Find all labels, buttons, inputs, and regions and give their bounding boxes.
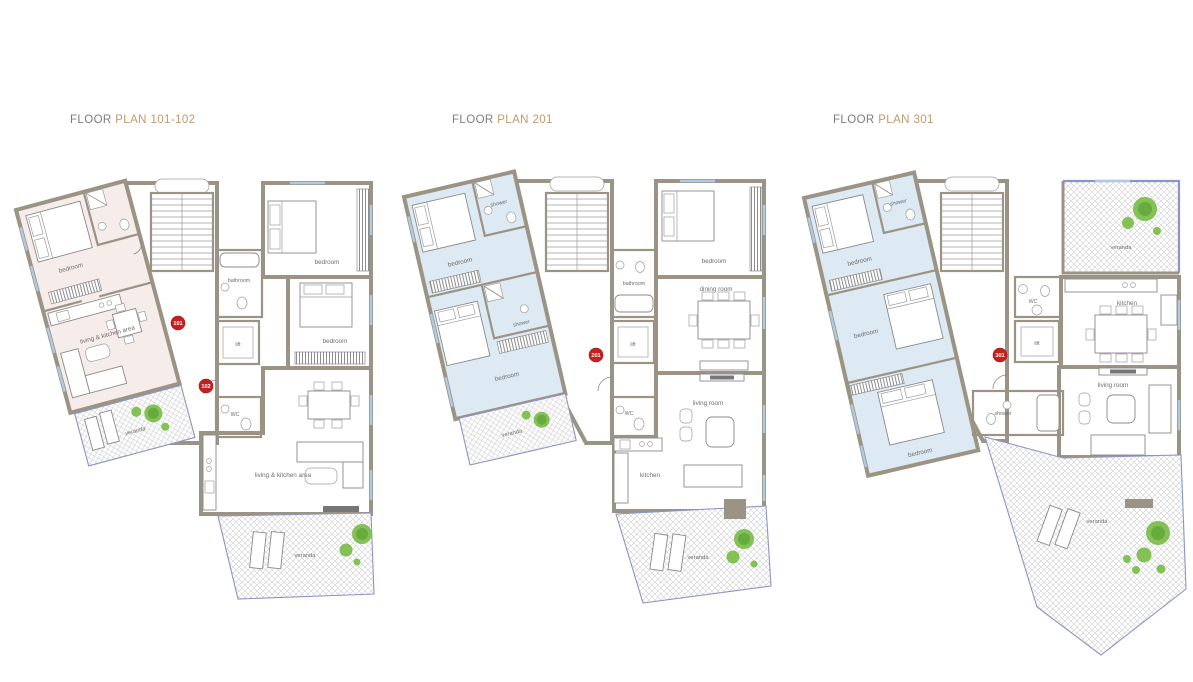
armchair bbox=[1107, 395, 1135, 423]
dining-room: dining room bbox=[656, 277, 764, 373]
service-core: bathroom lift WC bbox=[216, 250, 262, 437]
room-label-lift: lift bbox=[235, 342, 241, 348]
lift: lift bbox=[1015, 321, 1059, 362]
sofa bbox=[1149, 385, 1171, 433]
tree bbox=[354, 559, 361, 566]
side-table bbox=[1079, 393, 1090, 406]
service-core: WC lift bbox=[1015, 277, 1061, 362]
toilet bbox=[634, 418, 644, 430]
tree bbox=[1132, 566, 1140, 574]
tree bbox=[727, 551, 740, 564]
tree bbox=[1138, 202, 1152, 216]
tree bbox=[356, 528, 368, 540]
bedroom-102-ne: bedroom bbox=[263, 183, 371, 277]
room-label-lift: lift bbox=[1034, 341, 1040, 347]
kitchen-counter bbox=[614, 438, 662, 503]
tree bbox=[1153, 227, 1161, 235]
sink bbox=[1019, 285, 1028, 294]
veranda-se: veranda bbox=[985, 437, 1186, 655]
side-table bbox=[1079, 411, 1090, 424]
wardrobe bbox=[295, 352, 365, 364]
wc: WC bbox=[1015, 277, 1061, 317]
veranda-201: veranda bbox=[616, 499, 771, 603]
bathtub bbox=[220, 253, 259, 267]
bench bbox=[1125, 499, 1153, 508]
bedroom-201-ne: bedroom bbox=[656, 181, 764, 277]
room-label-wc: WC bbox=[1029, 299, 1038, 305]
room-label-bedroom-102-ne: bedroom bbox=[315, 259, 340, 266]
kitchen-counter bbox=[203, 435, 216, 510]
tree bbox=[751, 561, 758, 568]
wc: WC bbox=[611, 397, 655, 436]
badge-102-label: 102 bbox=[201, 384, 210, 390]
floor-plan-201: shower shower bbox=[404, 172, 771, 603]
wardrobe bbox=[750, 187, 762, 271]
sink bbox=[616, 406, 624, 414]
bathtub bbox=[1037, 395, 1059, 431]
lift: lift bbox=[612, 321, 654, 363]
tree bbox=[1151, 526, 1165, 540]
unit-badge-201: 201 bbox=[589, 348, 603, 362]
sofa bbox=[297, 442, 363, 488]
sink bbox=[221, 283, 229, 291]
kitchen-counter bbox=[1065, 279, 1157, 292]
badge-201-label: 201 bbox=[591, 353, 600, 359]
wall-block bbox=[724, 499, 746, 519]
unit-badge-301: 301 bbox=[993, 348, 1007, 362]
room-label-bathroom-102: bathroom bbox=[228, 278, 251, 284]
toilet bbox=[237, 297, 247, 309]
lift: lift bbox=[217, 321, 259, 364]
room-label-living-102: living & kitchen area bbox=[255, 472, 312, 479]
washing-machine bbox=[1032, 305, 1042, 315]
side-table bbox=[680, 409, 692, 423]
kitchen-301: kitchen bbox=[1061, 277, 1179, 367]
room-label-veranda: veranda bbox=[688, 555, 710, 561]
living-room-301: living room bbox=[1059, 367, 1179, 457]
room-label-living: living room bbox=[693, 400, 723, 407]
dining-table bbox=[299, 382, 359, 428]
unit-badge-101: 101 bbox=[171, 316, 185, 330]
dining-table bbox=[689, 292, 759, 348]
sink bbox=[221, 405, 229, 413]
tv-unit bbox=[323, 506, 359, 512]
sink bbox=[1003, 401, 1011, 409]
living-102: living & kitchen area bbox=[201, 368, 371, 514]
room-label-wc: WC bbox=[231, 412, 240, 418]
sideboard bbox=[700, 361, 748, 370]
room-label-kitchen: kitchen bbox=[640, 472, 660, 479]
wardrobe bbox=[357, 189, 369, 271]
room-label-wc: WC bbox=[625, 411, 634, 417]
badge-101-label: 101 bbox=[173, 321, 182, 327]
bedroom-102-e: bedroom bbox=[288, 277, 371, 368]
sofa bbox=[684, 465, 742, 487]
floor-plan-101-102: bedroom living & kitchen area veranda bbox=[16, 179, 374, 599]
bathroom-201: bathroom bbox=[612, 250, 656, 317]
toilet bbox=[241, 418, 251, 430]
room-label-shower-b: shower bbox=[994, 411, 1011, 417]
sink bbox=[616, 261, 624, 269]
dining-table bbox=[1086, 306, 1156, 362]
sofa bbox=[1091, 435, 1145, 455]
veranda-102: veranda bbox=[218, 513, 374, 599]
tree bbox=[738, 533, 750, 545]
room-label-bathroom: bathroom bbox=[623, 281, 646, 287]
living-kitchen-201: kitchen living room bbox=[614, 373, 764, 511]
tree bbox=[1122, 217, 1134, 229]
fridge bbox=[1161, 295, 1177, 325]
room-label-veranda-se: veranda bbox=[1087, 519, 1109, 525]
side-table bbox=[680, 427, 692, 441]
room-label-living: living room bbox=[1098, 382, 1128, 389]
tree bbox=[1123, 555, 1131, 563]
toilet bbox=[636, 262, 645, 273]
room-label-bedroom-ne: bedroom bbox=[702, 258, 727, 265]
room-label-lift: lift bbox=[630, 342, 636, 348]
floor-plans-page: FLOOR PLAN 101-102 FLOOR PLAN 201 FLOOR … bbox=[0, 0, 1193, 682]
tree bbox=[1137, 548, 1152, 563]
toilet bbox=[1041, 286, 1050, 297]
veranda-ne: veranda bbox=[1063, 181, 1179, 273]
bathroom-102: bathroom bbox=[217, 250, 262, 317]
room-label-bedroom-102-e: bedroom bbox=[323, 338, 348, 345]
floor-plan-301: shower bbox=[804, 173, 1186, 655]
service-core: bathroom lift WC bbox=[611, 250, 656, 436]
room-label-veranda-102: veranda bbox=[295, 553, 317, 559]
room-label-veranda-ne: veranda bbox=[1111, 245, 1133, 251]
armchair bbox=[706, 417, 734, 447]
floor-plans-drawing: bedroom living & kitchen area veranda bbox=[0, 0, 1193, 682]
tree bbox=[1157, 565, 1166, 574]
tree bbox=[340, 544, 353, 557]
shower-room-south: shower bbox=[973, 391, 1063, 435]
badge-301-label: 301 bbox=[995, 353, 1004, 359]
unit-badge-102: 102 bbox=[199, 379, 213, 393]
bathtub bbox=[615, 295, 653, 312]
